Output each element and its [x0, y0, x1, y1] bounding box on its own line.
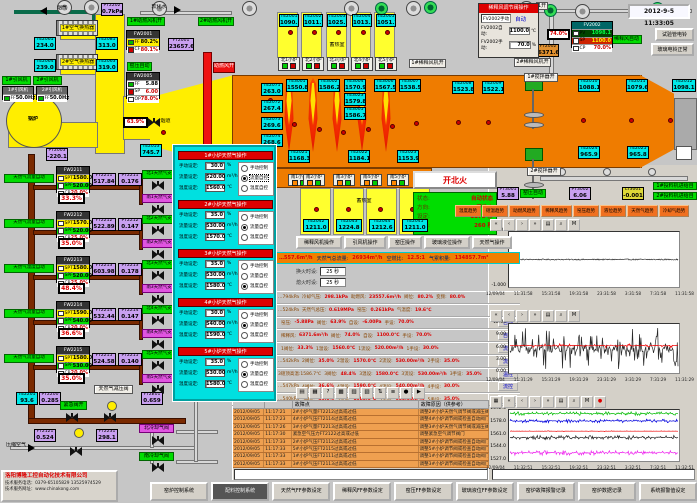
tag-value: 0.285	[40, 398, 60, 404]
chart-tool-M[interactable]: M	[568, 310, 580, 322]
row-key: PV	[580, 31, 586, 36]
row-value: 50.0Hz	[16, 95, 35, 101]
chart-xtick: 11:32:51	[514, 465, 533, 472]
radio-icon[interactable]	[241, 165, 248, 172]
chart-ytick: 1544.0	[487, 444, 506, 450]
alarm-cause: 调整3#小炉调节阀或检查自动阀门	[419, 461, 489, 467]
popup-radio-panel: 手动控制流量自控温度自控	[238, 260, 274, 294]
radio-label: 流量自控	[250, 371, 268, 377]
trend-button-助燃风趋势[interactable]: 助燃风趋势	[509, 205, 540, 217]
chart-tool-⌕[interactable]: ⌕	[568, 396, 580, 408]
port-北1小炉: 北1小炉	[278, 57, 300, 71]
radio-option-手动控制[interactable]: 手动控制	[239, 310, 273, 320]
radio-icon[interactable]	[241, 381, 248, 388]
instrument-FT2213: FT2213603.98	[92, 263, 116, 276]
led-red	[314, 63, 320, 69]
nav-button-系统报警值设定[interactable]: 系统报警值设定	[639, 482, 697, 501]
popup-field-input[interactable]: 30.0	[205, 309, 225, 317]
series-温度设定	[510, 431, 678, 432]
op-button-稀释风机操作[interactable]: 稀释风机操作	[296, 236, 342, 249]
radio-option-温度自控[interactable]: 温度自控	[239, 183, 273, 193]
label-烟气: 烟气	[52, 5, 72, 13]
alarm-row[interactable]: 2012/09/0511:17:332#小炉气压FT2112过高或过低调整2#小…	[233, 439, 489, 446]
popup-field-input[interactable]: 530.00	[205, 369, 225, 377]
popup-field-input[interactable]: 1580.0	[205, 380, 225, 388]
param-label: 1阀位:	[281, 346, 294, 352]
port-leds	[361, 180, 381, 186]
chart-tool-▦[interactable]: ▦	[490, 396, 502, 408]
popup-field-label: 流量设定:	[179, 321, 205, 329]
radio-label: 手动控制	[250, 165, 268, 171]
popup-radio-panel: 手动控制流量自控温度自控	[238, 211, 274, 245]
radio-label: 手动控制	[250, 214, 268, 220]
tag-value: 1567.5	[375, 85, 395, 91]
led-green	[315, 180, 321, 186]
toolbar-icon-0[interactable]: ▤	[296, 387, 308, 399]
chart-xtick: 12/09/04	[486, 291, 505, 298]
port-北2小炉: 北2小炉	[302, 57, 324, 71]
nav-button-稀释风FF参数设定[interactable]: 稀释风FF参数设定	[333, 482, 391, 501]
fv2002-manual-label: FV2002手动:	[481, 39, 508, 51]
alarm-row[interactable]: 2012/09/0511:17:234#小炉气压FT2114过高或过低调整4#小…	[233, 416, 489, 423]
row-value: 520.00	[73, 228, 92, 234]
label-蓄热室: 蓄热室	[352, 198, 376, 206]
param-label: 自设:	[349, 320, 360, 326]
alarm-row[interactable]: 2012/09/0511:17:263#小炉气量FT2213过高或过低调整3#小…	[233, 424, 489, 431]
chart-tool-▤[interactable]: ▤	[555, 396, 567, 408]
tag-value: 0.7kPa	[102, 9, 122, 15]
alarm-row[interactable]: 2012/09/0511:17:30紧急空气压力FT2122过高或过低调整紧急空…	[233, 431, 489, 438]
popup-field-input[interactable]: 1590.0	[205, 331, 225, 339]
param-value: -6.00Pa	[362, 320, 381, 325]
chart-toolbar: «‹›»▤⌕M	[490, 219, 640, 230]
nav-button-窑炉故障报警记录[interactable]: 窑炉故障报警记录	[517, 482, 575, 501]
popup-section-title: 2#小炉天然气操作	[178, 200, 273, 209]
trend-button-窑压趋势[interactable]: 窑压趋势	[573, 205, 599, 217]
checkbox-icon	[58, 356, 64, 362]
row-value: 78.0%	[141, 96, 158, 102]
param-label: 1温设:	[316, 346, 329, 352]
instrument-TE3006: TE30061567.5	[374, 79, 396, 92]
toolbar-icon-4[interactable]: ▨	[348, 387, 360, 399]
alarm-date: 2012/09/05	[233, 461, 264, 467]
param-label: 助燃风:	[351, 294, 366, 300]
instrument-FT2212: FT2212522.89	[92, 218, 116, 231]
controller-row: FF50.0Hz	[3, 94, 33, 102]
tag-value: 965.9	[579, 152, 599, 158]
controller-row: SP1100.0	[572, 37, 612, 45]
chart-ytick: 9.00	[487, 332, 506, 338]
gas-mode-label: 天然气温度自动	[4, 264, 54, 273]
port-北5小炉: 北5小炉	[375, 57, 397, 71]
chart-ytick: 0.00	[487, 369, 506, 375]
chart-tool-●[interactable]: ●	[594, 396, 606, 408]
tag-value: 1088.1	[579, 85, 599, 91]
instrument-TE2061: TE2061234.0	[34, 37, 56, 50]
toolbar-icon-9[interactable]: ▶	[413, 387, 425, 399]
instrument-TE2012: TE20121098.1	[672, 79, 696, 92]
gas-branch-north: 北5天然气支	[142, 350, 176, 359]
chart-xtick: 7:31:58	[650, 291, 666, 298]
chart-tool-‹[interactable]: ‹	[503, 219, 515, 231]
param-label: 1手设:	[407, 346, 420, 352]
chart-xtick: 11:31:29	[675, 377, 694, 384]
popup-field-unit: %	[227, 163, 237, 171]
trend-button-天然气趋势[interactable]: 天然气趋势	[627, 205, 658, 217]
gas-mode-label: 天然气流量自动	[4, 219, 54, 228]
chart-tool-›[interactable]: ›	[529, 396, 541, 408]
label-稀释风自动: 稀释风自动	[611, 35, 642, 44]
toolbar-icon-2[interactable]: ?	[322, 387, 334, 399]
radio-option-温度自控[interactable]: 温度自控	[239, 379, 273, 389]
chart-tool-»[interactable]: »	[542, 396, 554, 408]
popup-field-input[interactable]: 1570.0	[205, 233, 225, 241]
sensor-dot	[312, 30, 317, 35]
series-3#碹温	[510, 436, 678, 440]
nav-button-玻璃液位FF参数设定[interactable]: 玻璃液位FF参数设定	[456, 482, 514, 501]
popup-field-label: 流量设定:	[179, 370, 205, 378]
instrument-TE2043: TE20431224.8	[336, 219, 362, 232]
led-orange	[391, 180, 397, 186]
tag-value: 1586.2	[319, 85, 339, 91]
instrument-TE3007: TE30071538.5	[399, 79, 421, 92]
radio-option-流量自控[interactable]: 流量自控	[239, 222, 273, 232]
alarm-col-header: 故障点	[293, 400, 419, 409]
checkbox-icon	[58, 221, 64, 227]
popup-field-label: 手动设定:	[179, 359, 205, 367]
radio-option-手动控制[interactable]: 手动控制	[239, 212, 273, 222]
param-label: 2温设:	[337, 358, 350, 364]
tag-value: 1168.3	[289, 156, 309, 162]
op-button-天然气操作[interactable]: 天然气操作	[472, 236, 512, 249]
radio-icon[interactable]	[241, 312, 248, 319]
controller-tag: FV2002	[572, 22, 612, 29]
fv2002-auto-field[interactable]: 1100.0	[509, 27, 530, 35]
radio-icon[interactable]	[241, 332, 248, 339]
sensor-dot	[668, 118, 673, 123]
radio-icon[interactable]	[241, 175, 248, 182]
toolbar-icon-7[interactable]: ≡	[387, 387, 399, 399]
param-label: 3手设:	[450, 371, 463, 377]
valve-icon	[152, 463, 164, 472]
toolbar-icon-8[interactable]: ●	[400, 387, 412, 399]
popup-field-input[interactable]: 520.00	[205, 173, 225, 181]
gas-branch-north: 北3天然气支	[142, 260, 176, 269]
alarm-date: 2012/09/05	[233, 446, 264, 452]
param-label: 2流设:	[379, 358, 392, 364]
trend-button-液位趋势[interactable]: 液位趋势	[600, 205, 626, 217]
chart-tool-›[interactable]: ›	[516, 219, 528, 231]
instrument-TE3001: TE30011550.8	[286, 79, 308, 92]
param-label: 自设:	[363, 333, 374, 339]
controller-row: SPF520.00	[57, 272, 89, 280]
radio-option-温度自控[interactable]: 温度自控	[239, 330, 273, 340]
checkbox-icon	[58, 228, 64, 234]
gas-branch-south: 南5天然气支	[142, 374, 176, 383]
radio-label: 手动控制	[250, 361, 268, 367]
gas-accum-value: 134857.7m³	[455, 255, 489, 261]
chart-tool-«[interactable]: «	[503, 396, 515, 408]
radio-icon[interactable]	[241, 371, 248, 378]
checkbox-icon	[58, 176, 64, 182]
radio-icon[interactable]	[241, 361, 248, 368]
instrument-TE2010: TE20101088.1	[578, 79, 600, 92]
radio-option-流量自控[interactable]: 流量自控	[239, 173, 273, 183]
chart-tool-»[interactable]: »	[529, 310, 541, 322]
param-value: 520.00m³/h	[375, 346, 404, 351]
nav-button-天然气FF参数设定[interactable]: 天然气FF参数设定	[272, 482, 330, 501]
toolbar-icon-1[interactable]: ▦	[309, 387, 321, 399]
alarm-row[interactable]: 2012/09/0511:17:333#小炉气压FT2113过高或过低调整3#小…	[233, 461, 489, 468]
gas-mode-label: 天然气流量自动	[4, 309, 54, 318]
popup-radio-panel: 手动控制流量自控温度自控	[238, 162, 274, 196]
air-fuel-ratio-value: 12.5:1	[407, 255, 425, 261]
instrument-TE2001: TE20011090.1	[279, 14, 299, 27]
alarm-toolbar: ▤▦?▩▨▧⇅≡●▶	[296, 387, 436, 398]
chart-tool-»[interactable]: »	[529, 219, 541, 231]
radio-option-流量自控[interactable]: 流量自控	[239, 271, 273, 281]
toolbar-icon-5[interactable]: ▧	[361, 387, 373, 399]
radio-option-手动控制[interactable]: 手动控制	[239, 359, 273, 369]
valve-icon	[66, 413, 78, 422]
valve-position-box: 36.6%	[58, 328, 85, 339]
label-烟道: 烟道	[157, 118, 174, 126]
param-label: 气温度:	[397, 307, 412, 313]
radio-icon[interactable]	[241, 234, 248, 241]
alarm-date: 2012/09/05	[233, 453, 264, 459]
fv2002-manual-button[interactable]: FV2002手动	[481, 14, 511, 23]
led-green	[399, 180, 405, 186]
burn-dir-label: 方向:	[417, 204, 430, 213]
row-key: FF	[135, 82, 140, 87]
button-玻璃电铃正常[interactable]: 玻璃电铃正常	[651, 43, 694, 56]
valve-icon	[152, 340, 164, 349]
param-label: 3阀位:	[324, 371, 337, 377]
tag-value: 0.659	[142, 398, 162, 404]
chart-tool-‹[interactable]: ‹	[503, 310, 515, 322]
row-value: 1580.0	[73, 265, 92, 271]
op-button-窑压操作[interactable]: 窑压操作	[388, 236, 422, 249]
chart-xtick: 7:31:29	[650, 377, 666, 384]
row-key: SPF	[65, 228, 73, 233]
gas-branch-north: 北2天然气支	[142, 215, 176, 224]
chart-tool-«[interactable]: «	[490, 219, 502, 231]
radio-option-温度自控[interactable]: 温度自控	[239, 232, 273, 242]
radio-option-手动控制[interactable]: 手动控制	[239, 261, 273, 271]
popup-field-input[interactable]: 35.0	[205, 358, 225, 366]
chart-ytick: 3.00	[487, 357, 506, 363]
button-试验管电铃[interactable]: 试验管电铃	[655, 28, 694, 41]
radio-option-流量自控[interactable]: 流量自控	[239, 320, 273, 330]
popup-field-input[interactable]: 1580.0	[205, 282, 225, 290]
chart-xtick: 11:31:58	[514, 291, 533, 298]
chart-tool-M[interactable]: M	[568, 219, 580, 231]
toolbar-icon-6[interactable]: ⇅	[374, 387, 386, 399]
instrument-TE2024: TE2024965.9	[578, 146, 600, 159]
chart-xtick: 7:32:51	[650, 465, 666, 472]
chart-tool-⌕[interactable]: ⌕	[555, 310, 567, 322]
reversal-set-label: 换火时设:	[296, 268, 318, 275]
reversal-set-value[interactable]: 25 秒	[320, 267, 346, 276]
alarm-time: 11:17:33	[264, 439, 291, 445]
air-fuel-ratio-label: 空燃比:	[386, 255, 403, 262]
alarm-date: 2012/09/05	[233, 439, 264, 445]
fv2002-mode-value: 自动	[515, 15, 526, 23]
alarm-time: 11:17:33	[264, 446, 291, 452]
gauge-icon	[74, 428, 84, 438]
radio-icon[interactable]	[241, 185, 248, 192]
popup-field-input[interactable]: 540.00	[205, 320, 225, 328]
toolbar-icon-3[interactable]: ▩	[335, 387, 347, 399]
op-button-引风机操作[interactable]: 引风机操作	[344, 236, 386, 249]
param-value: 0.261kPa	[370, 308, 393, 313]
chart-xtick: 23:32:51	[597, 465, 616, 472]
led-icon	[128, 97, 134, 103]
led-green	[345, 180, 351, 186]
instrument-TE2022: TE20221184.1	[348, 150, 370, 163]
port-leds	[303, 63, 323, 69]
gas-branch-south: 南2天然气支	[142, 239, 176, 248]
popup-field-label: 流量设定:	[179, 272, 205, 280]
trend-button-温度趋势[interactable]: 温度趋势	[455, 205, 481, 217]
mixer-icon	[524, 148, 542, 208]
tag-value: 1211.0	[403, 225, 427, 231]
alarm-fault: 2#小炉气量FT2212过高或过低	[292, 409, 419, 415]
chart-tool-▤[interactable]: ▤	[542, 219, 554, 231]
tag-value: -0.001	[623, 193, 643, 199]
chart-tool-M[interactable]: M	[581, 396, 593, 408]
radio-label: 流量自控	[250, 175, 268, 181]
row-value: 1580.0	[73, 175, 92, 181]
tag-value: 1212.6	[370, 225, 394, 231]
controller-row: SPF530.00	[57, 362, 89, 370]
valve-icon	[152, 205, 164, 214]
instrument-TE2004: TE20041013.3	[352, 14, 372, 27]
param-label: 3温设:	[359, 371, 372, 377]
label-紧急阀开: 紧急阀开	[60, 401, 87, 410]
trend-button-碹温趋势[interactable]: 碹温趋势	[482, 205, 508, 217]
fan-icon	[84, 0, 99, 15]
controller-tag: 2#引风机	[37, 87, 67, 94]
popup-field-label: 手动设定:	[179, 163, 205, 171]
radio-icon[interactable]	[241, 283, 248, 290]
radio-label: 手动控制	[250, 263, 268, 269]
controller-row: FF80.2%	[127, 38, 159, 46]
nav-button-窑压FF参数设定[interactable]: 窑压FF参数设定	[394, 482, 452, 501]
flue-duct	[95, 14, 125, 154]
nav-button-窑炉控制系统[interactable]: 窑炉控制系统	[150, 482, 208, 501]
param-label: 2手设:	[427, 358, 440, 364]
tag-value: 1051.7	[377, 20, 395, 26]
label-1#引风机开: 1#引风机开	[2, 76, 31, 85]
row-value: 1098.1	[592, 30, 611, 36]
fire-direction-box: 开北火	[413, 171, 497, 189]
radio-option-流量自控[interactable]: 流量自控	[239, 369, 273, 379]
instrument-FT2215: FT2215524.58	[92, 353, 116, 366]
trend-button-稀释风趋势[interactable]: 稀释风趋势	[541, 205, 572, 217]
dilution-valve-panel: 稀释风调节阀操作 FV2002手动 自动 FV2002自动: 1100.0 ℃ …	[478, 3, 539, 58]
controller-row: SP6.00	[127, 88, 159, 96]
valve-icon	[152, 295, 164, 304]
popup-field-label: 温度设定:	[179, 332, 205, 340]
label-窑压自动: 窑压自动	[520, 189, 546, 198]
radio-icon[interactable]	[241, 224, 248, 231]
chart-tool-›[interactable]: ›	[516, 310, 528, 322]
param-value: 298.1kPa	[325, 295, 348, 300]
op-button-玻璃液位操作[interactable]: 玻璃液位操作	[424, 236, 470, 249]
popup-field-input[interactable]: 35.0	[205, 211, 225, 219]
flow-arrow-icon	[40, 7, 47, 15]
nav-button-窑炉数据记录[interactable]: 窑炉数据记录	[578, 482, 636, 501]
radio-icon[interactable]	[241, 273, 248, 280]
pause-set-row: 熄火时设: 25 秒	[296, 278, 346, 287]
pause-set-value[interactable]: 25 秒	[320, 278, 346, 287]
radio-option-温度自控[interactable]: 温度自控	[239, 281, 273, 291]
popup-field-input[interactable]: 30.0	[205, 162, 225, 170]
param-value: -5.88Pa	[295, 320, 314, 325]
gas-operation-popup: 1#小炉天然气操作手动设定:30.0%流量设定:520.00m³/h温度设定:1…	[173, 145, 276, 401]
alarm-date: 2012/09/05	[233, 424, 264, 430]
led-orange	[364, 180, 370, 186]
instrument-TE2071: TE2071263.0	[261, 83, 283, 96]
tag-value: 0.147	[119, 224, 141, 230]
chart-tool-⌕[interactable]: ⌕	[555, 219, 567, 231]
alarm-col-header	[233, 400, 265, 409]
led-green	[282, 63, 288, 69]
popup-field-input[interactable]: 1560.0	[205, 184, 225, 192]
air-branch	[194, 398, 198, 462]
chart-plot-1	[508, 323, 680, 374]
param-value: 74.0%	[344, 333, 360, 338]
popup-field-input[interactable]: 530.00	[205, 271, 225, 279]
radio-icon[interactable]	[241, 263, 248, 270]
radio-option-手动控制[interactable]: 手动控制	[239, 163, 273, 173]
popup-field-input[interactable]: 530.00	[205, 222, 225, 230]
chart-tool-«[interactable]: «	[490, 310, 502, 322]
mixer-icon	[524, 78, 542, 138]
row-value: 6.00	[146, 89, 158, 95]
instrument-TE2044: TE20441212.6	[369, 219, 395, 232]
alarm-row[interactable]: 2012/09/0511:17:335#小炉气压FT2115过高或过低调整5#小…	[233, 446, 489, 453]
row-value: 80.1%	[141, 47, 158, 53]
chart-xtick: 12/09/04	[486, 377, 505, 384]
sensor-dot	[341, 130, 346, 135]
param-value: 530.00m³/h	[418, 372, 447, 377]
param-value: 70.0%	[416, 333, 432, 338]
chart-tool-▤[interactable]: ▤	[542, 310, 554, 322]
alarm-time: 11:17:33	[264, 453, 291, 459]
chart-tool-‹[interactable]: ‹	[516, 396, 528, 408]
sensor-dot	[629, 118, 634, 123]
port-leds	[376, 63, 396, 69]
nav-button-配料控制系统[interactable]: 配料控制系统	[211, 482, 269, 501]
chart-toolbar: ▦«‹›»▤⌕M●	[490, 396, 640, 407]
fv2002-manual-field[interactable]: 70.0	[509, 41, 531, 49]
alarm-time: 11:17:26	[264, 424, 291, 430]
popup-field-unit: %	[227, 212, 237, 220]
tag-value: 1011.7	[304, 20, 322, 26]
label-1#助燃风机开: 1#助燃风机开	[127, 17, 165, 26]
radio-icon[interactable]	[241, 214, 248, 221]
popup-field-label: 手动设定:	[179, 212, 205, 220]
popup-field-input[interactable]: 35.0	[205, 260, 225, 268]
instrument-PT3002: PT30026.06	[569, 187, 591, 200]
alarm-row[interactable]: 2012/09/0511:17:331#小炉气压FT2111过高或过低调整1#小…	[233, 453, 489, 460]
trend-button-冷却气趋势[interactable]: 冷却气趋势	[659, 205, 689, 217]
alarm-row[interactable]: 2012/09/0511:17:212#小炉气量FT2212过高或过低调整2#小…	[233, 409, 489, 416]
radio-icon[interactable]	[241, 322, 248, 329]
label-软化水: 软化水	[146, 4, 172, 12]
